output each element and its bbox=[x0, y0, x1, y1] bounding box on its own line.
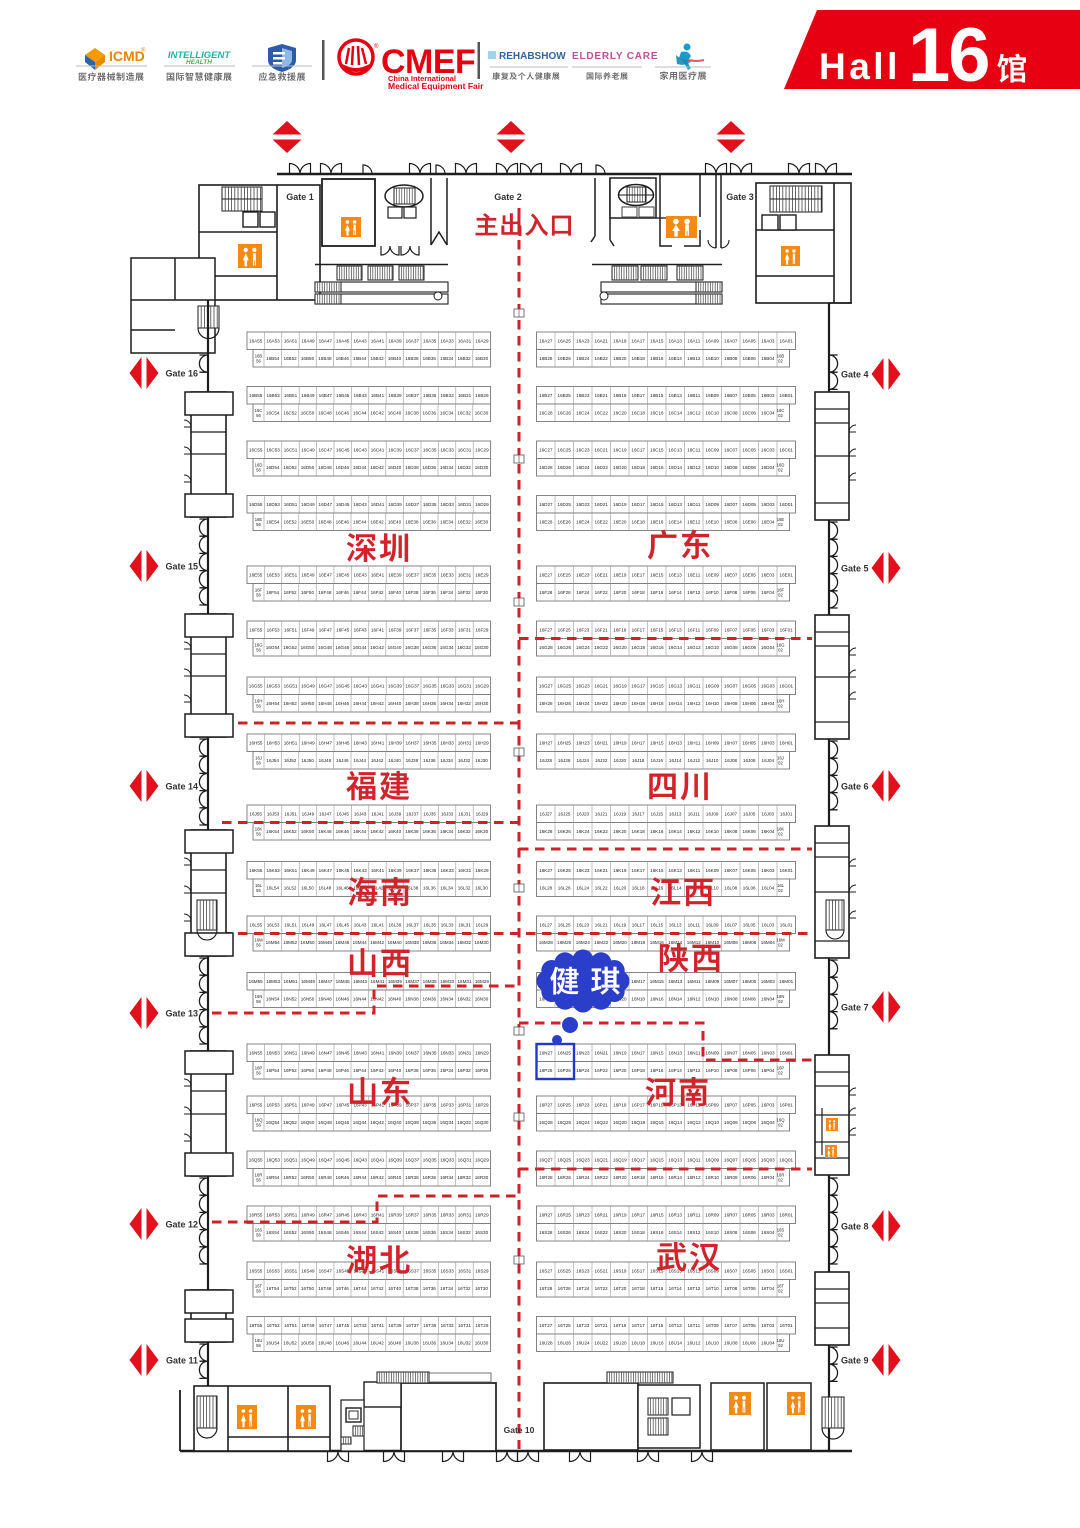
svg-text:16P26: 16P26 bbox=[558, 1068, 572, 1073]
svg-text:16K53: 16K53 bbox=[266, 868, 280, 873]
svg-text:16D50: 16D50 bbox=[301, 465, 315, 470]
svg-text:16Q15: 16Q15 bbox=[650, 1158, 664, 1163]
svg-text:16R03: 16R03 bbox=[761, 1213, 775, 1218]
svg-text:16P17: 16P17 bbox=[632, 1103, 646, 1108]
svg-text:16M33: 16M33 bbox=[440, 979, 454, 984]
svg-text:16J25: 16J25 bbox=[558, 812, 571, 817]
svg-text:16G40: 16G40 bbox=[388, 645, 402, 650]
svg-text:16G14: 16G14 bbox=[668, 645, 682, 650]
svg-text:16S27: 16S27 bbox=[539, 1269, 553, 1274]
svg-text:16F07: 16F07 bbox=[724, 628, 737, 633]
svg-text:16Q29: 16Q29 bbox=[475, 1158, 489, 1163]
svg-text:16B47: 16B47 bbox=[319, 393, 333, 398]
svg-text:16R28: 16R28 bbox=[539, 1175, 553, 1180]
svg-text:16C17: 16C17 bbox=[631, 448, 645, 453]
svg-text:16G25: 16G25 bbox=[557, 684, 571, 689]
svg-text:ELDERLY CARE: ELDERLY CARE bbox=[572, 51, 658, 62]
svg-text:16F06: 16F06 bbox=[743, 590, 756, 595]
svg-text:16E30: 16E30 bbox=[475, 520, 489, 525]
svg-text:Gate 7: Gate 7 bbox=[841, 1003, 869, 1013]
svg-text:16C46: 16C46 bbox=[336, 411, 350, 416]
svg-text:16E24: 16E24 bbox=[576, 520, 590, 525]
svg-text:16F54: 16F54 bbox=[266, 590, 279, 595]
svg-text:16R16: 16R16 bbox=[650, 1175, 664, 1180]
svg-text:16D03: 16D03 bbox=[761, 502, 775, 507]
svg-text:16E47: 16E47 bbox=[319, 573, 333, 578]
svg-text:16E09: 16E09 bbox=[706, 573, 720, 578]
svg-text:16E14: 16E14 bbox=[669, 520, 683, 525]
svg-text:16J38: 16J38 bbox=[406, 758, 419, 763]
svg-text:02: 02 bbox=[778, 1123, 783, 1128]
svg-text:16L48: 16L48 bbox=[319, 886, 332, 891]
svg-text:16B17: 16B17 bbox=[632, 393, 646, 398]
svg-text:16C21: 16C21 bbox=[594, 448, 608, 453]
svg-text:ICMD: ICMD bbox=[109, 48, 145, 64]
svg-text:16S24: 16S24 bbox=[576, 1230, 590, 1235]
svg-text:16N41: 16N41 bbox=[371, 1051, 385, 1056]
svg-text:16J39: 16J39 bbox=[389, 812, 402, 817]
svg-text:16T08: 16T08 bbox=[724, 1286, 737, 1291]
svg-text:16R21: 16R21 bbox=[594, 1213, 608, 1218]
svg-text:16F10: 16F10 bbox=[706, 590, 719, 595]
svg-text:16B13: 16B13 bbox=[669, 393, 683, 398]
svg-text:16L39: 16L39 bbox=[389, 923, 402, 928]
svg-text:16T46: 16T46 bbox=[336, 1286, 349, 1291]
svg-text:16Q55: 16Q55 bbox=[249, 1158, 263, 1163]
svg-text:16K30: 16K30 bbox=[475, 829, 489, 834]
svg-text:16B14: 16B14 bbox=[669, 356, 683, 361]
svg-text:16S52: 16S52 bbox=[283, 1230, 297, 1235]
svg-text:16F09: 16F09 bbox=[706, 628, 719, 633]
svg-text:16N07: 16N07 bbox=[724, 1051, 738, 1056]
svg-text:16R04: 16R04 bbox=[761, 1175, 775, 1180]
svg-text:16G06: 16G06 bbox=[742, 645, 756, 650]
svg-text:16S54: 16S54 bbox=[266, 1230, 280, 1235]
svg-text:02: 02 bbox=[778, 1343, 783, 1348]
svg-text:16S28: 16S28 bbox=[539, 1230, 553, 1235]
svg-text:56: 56 bbox=[256, 359, 261, 364]
svg-text:56: 56 bbox=[256, 648, 261, 653]
svg-text:16H19: 16H19 bbox=[613, 741, 627, 746]
svg-text:16T18: 16T18 bbox=[632, 1286, 645, 1291]
svg-text:02: 02 bbox=[778, 761, 783, 766]
svg-text:16J21: 16J21 bbox=[595, 812, 608, 817]
svg-text:16F08: 16F08 bbox=[724, 590, 737, 595]
svg-text:16D20: 16D20 bbox=[613, 465, 627, 470]
svg-text:16F49: 16F49 bbox=[301, 628, 314, 633]
svg-text:16K18: 16K18 bbox=[632, 829, 646, 834]
svg-text:16K42: 16K42 bbox=[370, 829, 384, 834]
svg-text:16B19: 16B19 bbox=[613, 393, 627, 398]
svg-text:16Q32: 16Q32 bbox=[457, 1120, 471, 1125]
svg-text:16G48: 16G48 bbox=[318, 645, 332, 650]
svg-text:16Q03: 16Q03 bbox=[761, 1158, 775, 1163]
svg-text:16Q51: 16Q51 bbox=[284, 1158, 298, 1163]
svg-text:16T45: 16T45 bbox=[336, 1323, 349, 1328]
svg-text:16R06: 16R06 bbox=[742, 1175, 756, 1180]
svg-text:16E50: 16E50 bbox=[301, 520, 315, 525]
svg-text:56: 56 bbox=[256, 593, 261, 598]
svg-text:02: 02 bbox=[778, 359, 783, 364]
svg-text:16L53: 16L53 bbox=[267, 923, 280, 928]
svg-text:16G09: 16G09 bbox=[705, 684, 719, 689]
svg-text:16S34: 16S34 bbox=[440, 1230, 454, 1235]
svg-text:16F21: 16F21 bbox=[595, 628, 608, 633]
svg-text:16G03: 16G03 bbox=[761, 684, 775, 689]
svg-text:16L36: 16L36 bbox=[423, 886, 436, 891]
svg-text:16C34: 16C34 bbox=[440, 411, 454, 416]
svg-text:16T26: 16T26 bbox=[558, 1286, 571, 1291]
svg-text:16B52: 16B52 bbox=[283, 356, 297, 361]
svg-text:16F15: 16F15 bbox=[650, 628, 663, 633]
svg-text:16E45: 16E45 bbox=[336, 573, 350, 578]
svg-text:16C39: 16C39 bbox=[388, 448, 402, 453]
svg-text:16T15: 16T15 bbox=[650, 1323, 663, 1328]
svg-text:16B04: 16B04 bbox=[761, 356, 775, 361]
svg-text:16G50: 16G50 bbox=[301, 645, 315, 650]
svg-text:16N23: 16N23 bbox=[576, 1051, 590, 1056]
svg-text:16B38: 16B38 bbox=[405, 356, 419, 361]
svg-text:16J26: 16J26 bbox=[558, 758, 571, 763]
svg-text:16N18: 16N18 bbox=[631, 997, 645, 1002]
svg-text:16R38: 16R38 bbox=[405, 1175, 419, 1180]
svg-text:16B22: 16B22 bbox=[595, 356, 609, 361]
svg-text:16B40: 16B40 bbox=[388, 356, 402, 361]
svg-text:16G07: 16G07 bbox=[724, 684, 738, 689]
svg-text:16U34: 16U34 bbox=[440, 1341, 454, 1346]
svg-text:16G42: 16G42 bbox=[370, 645, 384, 650]
svg-text:16S03: 16S03 bbox=[761, 1269, 775, 1274]
svg-text:16Q10: 16Q10 bbox=[705, 1120, 719, 1125]
svg-text:16S23: 16S23 bbox=[576, 1269, 590, 1274]
svg-text:16T06: 16T06 bbox=[743, 1286, 756, 1291]
svg-text:16U30: 16U30 bbox=[475, 1341, 489, 1346]
svg-text:16H13: 16H13 bbox=[668, 741, 682, 746]
svg-text:16P21: 16P21 bbox=[595, 1103, 609, 1108]
svg-text:16J33: 16J33 bbox=[441, 812, 454, 817]
svg-text:16H30: 16H30 bbox=[475, 701, 489, 706]
svg-text:16B28: 16B28 bbox=[539, 356, 553, 361]
svg-text:16U50: 16U50 bbox=[301, 1341, 315, 1346]
svg-text:16C50: 16C50 bbox=[301, 411, 315, 416]
svg-text:16E42: 16E42 bbox=[370, 520, 384, 525]
svg-text:16B03: 16B03 bbox=[761, 393, 775, 398]
svg-text:16R41: 16R41 bbox=[371, 1213, 385, 1218]
svg-text:16A41: 16A41 bbox=[371, 339, 385, 344]
svg-text:16Q47: 16Q47 bbox=[318, 1158, 332, 1163]
svg-text:16R05: 16R05 bbox=[742, 1213, 756, 1218]
svg-text:16D29: 16D29 bbox=[475, 502, 489, 507]
svg-text:16C51: 16C51 bbox=[284, 448, 298, 453]
svg-text:16H40: 16H40 bbox=[388, 701, 402, 706]
svg-text:16F26: 16F26 bbox=[558, 590, 571, 595]
svg-text:16L25: 16L25 bbox=[558, 923, 571, 928]
svg-text:16E21: 16E21 bbox=[595, 573, 609, 578]
svg-text:16H03: 16H03 bbox=[761, 741, 775, 746]
svg-text:16N43: 16N43 bbox=[353, 1051, 367, 1056]
svg-text:16M10: 16M10 bbox=[705, 940, 719, 945]
svg-text:16S47: 16S47 bbox=[319, 1269, 333, 1274]
svg-text:16M51: 16M51 bbox=[283, 979, 297, 984]
svg-text:16H28: 16H28 bbox=[539, 701, 553, 706]
svg-text:16N33: 16N33 bbox=[440, 1051, 454, 1056]
svg-text:02: 02 bbox=[778, 648, 783, 653]
svg-text:16B09: 16B09 bbox=[706, 393, 720, 398]
svg-text:16S33: 16S33 bbox=[440, 1269, 454, 1274]
svg-text:16F11: 16F11 bbox=[687, 628, 700, 633]
svg-text:16U36: 16U36 bbox=[423, 1341, 437, 1346]
svg-text:16C03: 16C03 bbox=[761, 448, 775, 453]
svg-text:16M01: 16M01 bbox=[779, 979, 793, 984]
svg-text:16H07: 16H07 bbox=[724, 741, 738, 746]
svg-text:16R45: 16R45 bbox=[336, 1213, 350, 1218]
svg-text:16T48: 16T48 bbox=[318, 1286, 331, 1291]
svg-text:16A01: 16A01 bbox=[780, 339, 794, 344]
svg-text:16D55: 16D55 bbox=[249, 502, 263, 507]
svg-text:16A15: 16A15 bbox=[650, 339, 664, 344]
svg-text:16H44: 16H44 bbox=[353, 701, 367, 706]
svg-text:16N37: 16N37 bbox=[406, 1051, 420, 1056]
svg-text:16B37: 16B37 bbox=[406, 393, 420, 398]
svg-text:16G54: 16G54 bbox=[266, 645, 280, 650]
svg-text:16C30: 16C30 bbox=[475, 411, 489, 416]
svg-text:16G55: 16G55 bbox=[249, 684, 263, 689]
svg-text:16K14: 16K14 bbox=[669, 829, 683, 834]
svg-text:16R25: 16R25 bbox=[557, 1213, 571, 1218]
svg-text:16E52: 16E52 bbox=[283, 520, 297, 525]
svg-text:16K27: 16K27 bbox=[539, 868, 553, 873]
svg-text:16F33: 16F33 bbox=[441, 628, 454, 633]
svg-text:16S08: 16S08 bbox=[724, 1230, 738, 1235]
svg-text:16S42: 16S42 bbox=[370, 1230, 384, 1235]
svg-text:16N10: 16N10 bbox=[705, 997, 719, 1002]
svg-text:16N42: 16N42 bbox=[370, 997, 384, 1002]
svg-text:16F04: 16F04 bbox=[761, 590, 774, 595]
svg-text:16L23: 16L23 bbox=[576, 923, 589, 928]
svg-text:16K44: 16K44 bbox=[353, 829, 367, 834]
svg-text:16A47: 16A47 bbox=[319, 339, 333, 344]
svg-text:16L06: 16L06 bbox=[743, 886, 756, 891]
svg-text:16G19: 16G19 bbox=[613, 684, 627, 689]
svg-text:16R51: 16R51 bbox=[284, 1213, 298, 1218]
svg-text:16C37: 16C37 bbox=[406, 448, 420, 453]
svg-text:16M30: 16M30 bbox=[474, 940, 488, 945]
svg-text:16N29: 16N29 bbox=[475, 1051, 489, 1056]
svg-text:16D34: 16D34 bbox=[440, 465, 454, 470]
svg-text:16D09: 16D09 bbox=[705, 502, 719, 507]
svg-text:16N52: 16N52 bbox=[283, 997, 297, 1002]
svg-text:16A37: 16A37 bbox=[406, 339, 420, 344]
svg-text:16C06: 16C06 bbox=[742, 411, 756, 416]
svg-text:16P35: 16P35 bbox=[423, 1103, 437, 1108]
svg-text:16A31: 16A31 bbox=[458, 339, 472, 344]
svg-text:56: 56 bbox=[256, 761, 261, 766]
svg-text:16G27: 16G27 bbox=[539, 684, 553, 689]
svg-text:16E38: 16E38 bbox=[405, 520, 419, 525]
svg-text:16N32: 16N32 bbox=[457, 997, 471, 1002]
svg-text:16: 16 bbox=[908, 13, 989, 98]
svg-text:16L47: 16L47 bbox=[319, 923, 332, 928]
svg-text:16D27: 16D27 bbox=[539, 502, 553, 507]
svg-text:16H31: 16H31 bbox=[458, 741, 472, 746]
svg-text:16F39: 16F39 bbox=[388, 628, 401, 633]
svg-text:16H24: 16H24 bbox=[576, 701, 590, 706]
svg-text:16K48: 16K48 bbox=[318, 829, 332, 834]
svg-text:16R37: 16R37 bbox=[406, 1213, 420, 1218]
svg-text:16C20: 16C20 bbox=[613, 411, 627, 416]
svg-text:16T12: 16T12 bbox=[687, 1286, 700, 1291]
svg-text:16L18: 16L18 bbox=[632, 886, 645, 891]
svg-text:16C24: 16C24 bbox=[576, 411, 590, 416]
svg-text:16F22: 16F22 bbox=[595, 590, 608, 595]
svg-text:16Q07: 16Q07 bbox=[724, 1158, 738, 1163]
svg-text:16N25: 16N25 bbox=[557, 1051, 571, 1056]
svg-text:16R23: 16R23 bbox=[576, 1213, 590, 1218]
svg-text:16P23: 16P23 bbox=[576, 1103, 590, 1108]
svg-text:16D35: 16D35 bbox=[423, 502, 437, 507]
svg-text:16K05: 16K05 bbox=[743, 868, 757, 873]
svg-text:16S46: 16S46 bbox=[336, 1230, 350, 1235]
svg-text:16A17: 16A17 bbox=[632, 339, 646, 344]
svg-text:16M14: 16M14 bbox=[668, 940, 682, 945]
svg-text:16U40: 16U40 bbox=[388, 1341, 402, 1346]
svg-text:16E48: 16E48 bbox=[318, 520, 332, 525]
svg-text:16J52: 16J52 bbox=[284, 758, 297, 763]
svg-text:16K32: 16K32 bbox=[457, 829, 471, 834]
svg-text:16N14: 16N14 bbox=[668, 997, 682, 1002]
svg-text:16D40: 16D40 bbox=[388, 465, 402, 470]
svg-text:16B25: 16B25 bbox=[558, 393, 572, 398]
svg-text:16Q21: 16Q21 bbox=[594, 1158, 608, 1163]
svg-text:16D37: 16D37 bbox=[406, 502, 420, 507]
svg-text:16C15: 16C15 bbox=[650, 448, 664, 453]
svg-text:16U08: 16U08 bbox=[724, 1341, 738, 1346]
svg-text:16M49: 16M49 bbox=[301, 979, 315, 984]
svg-text:16B45: 16B45 bbox=[336, 393, 350, 398]
svg-text:16Q43: 16Q43 bbox=[353, 1158, 367, 1163]
svg-text:16C55: 16C55 bbox=[249, 448, 263, 453]
svg-text:16L31: 16L31 bbox=[458, 923, 471, 928]
svg-text:16L19: 16L19 bbox=[613, 923, 626, 928]
svg-text:Gate 10: Gate 10 bbox=[504, 1425, 535, 1435]
svg-text:16J51: 16J51 bbox=[284, 812, 297, 817]
svg-text:16L55: 16L55 bbox=[249, 923, 262, 928]
svg-text:16T05: 16T05 bbox=[743, 1323, 756, 1328]
svg-text:16G15: 16G15 bbox=[650, 684, 664, 689]
svg-text:16N15: 16N15 bbox=[650, 1051, 664, 1056]
svg-text:16T27: 16T27 bbox=[539, 1323, 552, 1328]
svg-text:16G30: 16G30 bbox=[475, 645, 489, 650]
svg-text:16F23: 16F23 bbox=[576, 628, 589, 633]
svg-text:16Q54: 16Q54 bbox=[266, 1120, 280, 1125]
svg-text:16S07: 16S07 bbox=[724, 1269, 738, 1274]
svg-text:16K15: 16K15 bbox=[650, 868, 664, 873]
svg-text:16B30: 16B30 bbox=[475, 356, 489, 361]
svg-text:02: 02 bbox=[778, 943, 783, 948]
svg-text:16T47: 16T47 bbox=[319, 1323, 332, 1328]
svg-text:16H22: 16H22 bbox=[594, 701, 608, 706]
svg-text:16K16: 16K16 bbox=[650, 829, 664, 834]
svg-text:16R42: 16R42 bbox=[370, 1175, 384, 1180]
svg-text:16B34: 16B34 bbox=[440, 356, 454, 361]
svg-text:16T14: 16T14 bbox=[669, 1286, 682, 1291]
svg-text:16G53: 16G53 bbox=[266, 684, 280, 689]
svg-text:16T31: 16T31 bbox=[458, 1323, 471, 1328]
svg-text:16T07: 16T07 bbox=[724, 1323, 737, 1328]
svg-text:16H37: 16H37 bbox=[406, 741, 420, 746]
svg-text:16D46: 16D46 bbox=[336, 465, 350, 470]
svg-text:16D23: 16D23 bbox=[576, 502, 590, 507]
svg-text:16B27: 16B27 bbox=[539, 393, 553, 398]
svg-text:16L22: 16L22 bbox=[595, 886, 608, 891]
svg-text:16N27: 16N27 bbox=[539, 1051, 553, 1056]
svg-text:16G47: 16G47 bbox=[318, 684, 332, 689]
svg-text:16H27: 16H27 bbox=[539, 741, 553, 746]
svg-text:16M32: 16M32 bbox=[457, 940, 471, 945]
svg-text:16E37: 16E37 bbox=[406, 573, 420, 578]
svg-text:16T16: 16T16 bbox=[650, 1286, 663, 1291]
svg-text:16L28: 16L28 bbox=[539, 886, 552, 891]
svg-text:16P45: 16P45 bbox=[336, 1103, 350, 1108]
svg-text:16M40: 16M40 bbox=[387, 940, 401, 945]
svg-text:16B44: 16B44 bbox=[353, 356, 367, 361]
svg-text:16S14: 16S14 bbox=[669, 1230, 683, 1235]
svg-text:16H45: 16H45 bbox=[336, 741, 350, 746]
svg-text:16F18: 16F18 bbox=[632, 590, 645, 595]
svg-text:56: 56 bbox=[256, 1343, 261, 1348]
svg-text:16S17: 16S17 bbox=[632, 1269, 646, 1274]
svg-text:16P50: 16P50 bbox=[301, 1068, 315, 1073]
svg-text:16G01: 16G01 bbox=[779, 684, 793, 689]
svg-text:16P52: 16P52 bbox=[283, 1068, 297, 1073]
svg-text:16M28: 16M28 bbox=[539, 940, 553, 945]
svg-text:16R33: 16R33 bbox=[440, 1213, 454, 1218]
svg-text:16A51: 16A51 bbox=[284, 339, 298, 344]
svg-text:16U04: 16U04 bbox=[761, 1341, 775, 1346]
svg-text:16D07: 16D07 bbox=[724, 502, 738, 507]
svg-text:16M36: 16M36 bbox=[422, 940, 436, 945]
svg-text:16F13: 16F13 bbox=[669, 628, 682, 633]
svg-text:16B16: 16B16 bbox=[650, 356, 664, 361]
svg-text:16G32: 16G32 bbox=[457, 645, 471, 650]
svg-text:02: 02 bbox=[778, 832, 783, 837]
svg-text:16K24: 16K24 bbox=[576, 829, 590, 834]
svg-text:16E25: 16E25 bbox=[558, 573, 572, 578]
svg-text:16R10: 16R10 bbox=[705, 1175, 719, 1180]
svg-text:16S53: 16S53 bbox=[266, 1269, 280, 1274]
svg-text:16H41: 16H41 bbox=[371, 741, 385, 746]
svg-text:Gate 4: Gate 4 bbox=[841, 370, 869, 380]
svg-text:16D39: 16D39 bbox=[388, 502, 402, 507]
svg-text:16R32: 16R32 bbox=[457, 1175, 471, 1180]
svg-text:16U42: 16U42 bbox=[370, 1341, 384, 1346]
svg-text:16K21: 16K21 bbox=[595, 868, 609, 873]
svg-text:16E46: 16E46 bbox=[336, 520, 350, 525]
svg-text:16G23: 16G23 bbox=[576, 684, 590, 689]
svg-text:16Q35: 16Q35 bbox=[423, 1158, 437, 1163]
svg-text:Gate 16: Gate 16 bbox=[165, 369, 198, 379]
svg-text:16L20: 16L20 bbox=[613, 886, 626, 891]
svg-text:16E43: 16E43 bbox=[353, 573, 367, 578]
svg-text:16H14: 16H14 bbox=[668, 701, 682, 706]
svg-text:16T03: 16T03 bbox=[761, 1323, 774, 1328]
svg-text:16D25: 16D25 bbox=[557, 502, 571, 507]
svg-text:16K09: 16K09 bbox=[706, 868, 720, 873]
svg-text:16S25: 16S25 bbox=[558, 1269, 572, 1274]
svg-text:16E18: 16E18 bbox=[632, 520, 646, 525]
svg-text:16U48: 16U48 bbox=[318, 1341, 332, 1346]
svg-text:16E27: 16E27 bbox=[539, 573, 553, 578]
